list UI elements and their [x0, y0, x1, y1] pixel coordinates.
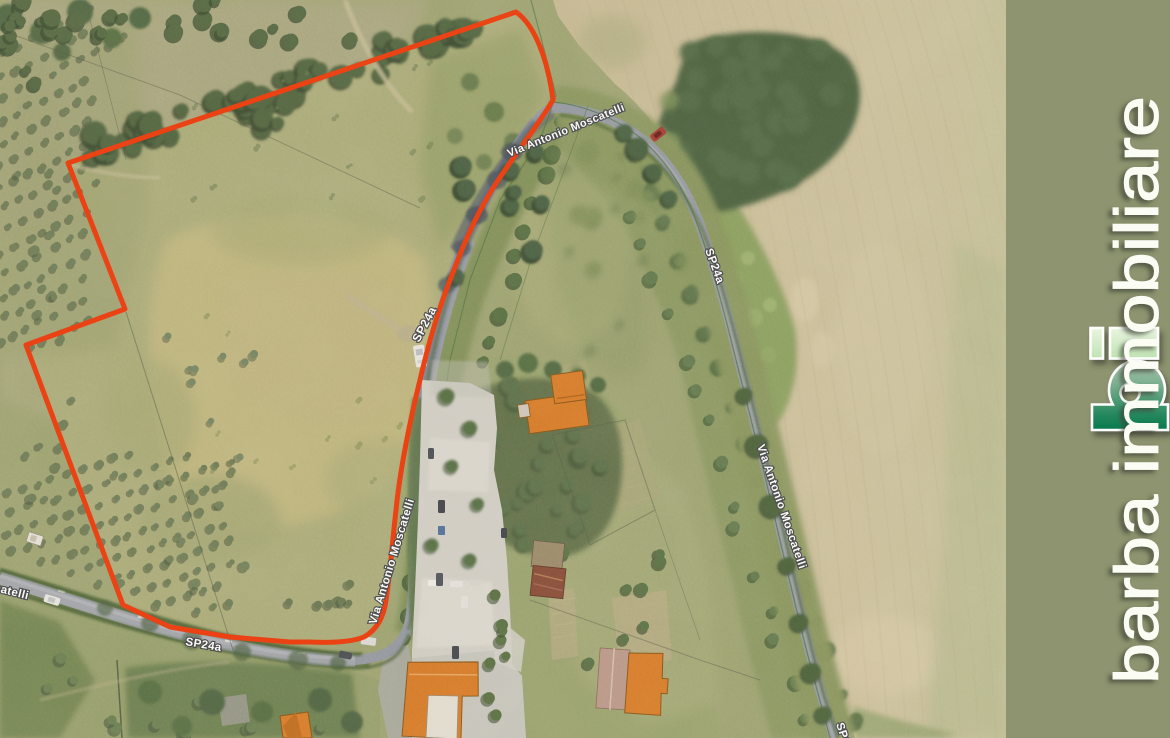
svg-text:barba immobiliare: barba immobiliare — [1103, 96, 1170, 684]
